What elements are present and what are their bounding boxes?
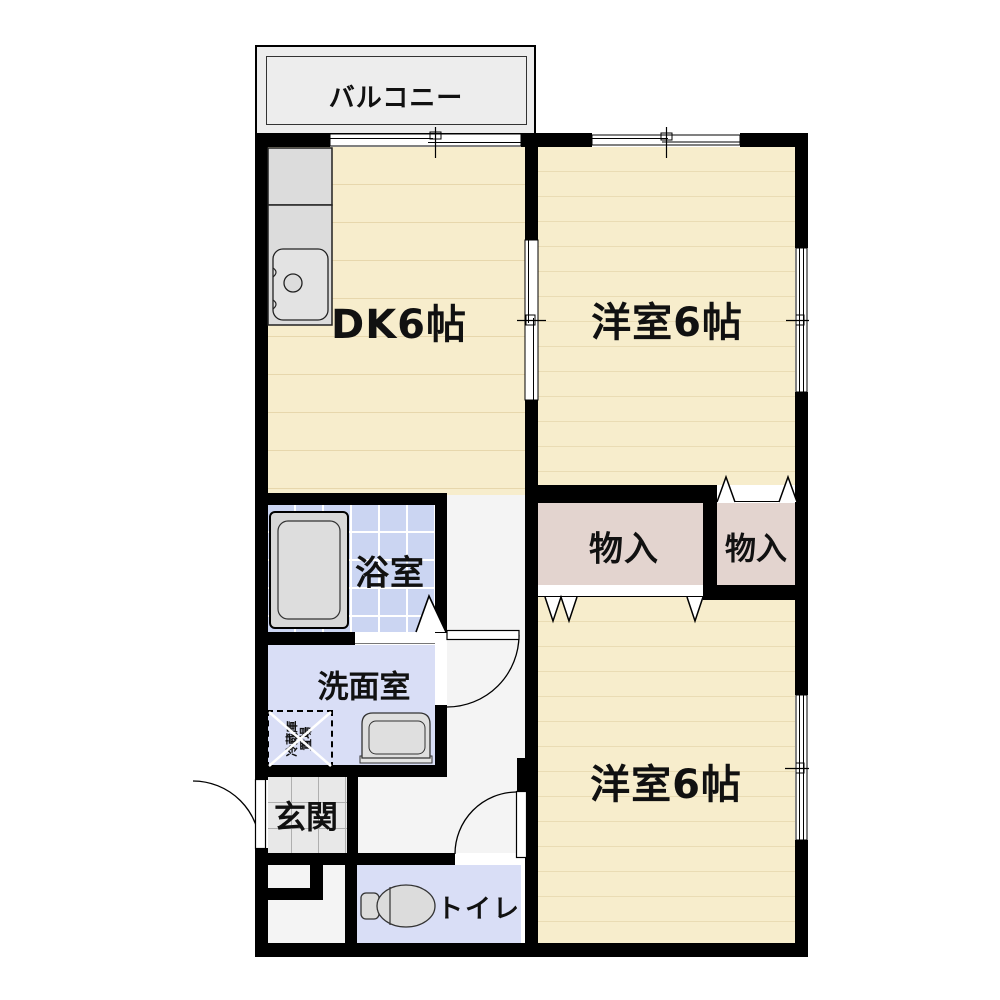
toilet-label: トイレ bbox=[437, 889, 521, 926]
closet-left-label: 物入 bbox=[589, 522, 659, 571]
bedroom-top-side-window-icon bbox=[786, 248, 809, 392]
balcony-label: バルコニー bbox=[329, 78, 463, 115]
bathroom-label: 浴室 bbox=[355, 546, 425, 595]
entrance-label: 玄関 bbox=[274, 792, 338, 838]
washroom-label: 洗面室 bbox=[318, 662, 411, 707]
entrance-door-icon bbox=[193, 780, 266, 849]
bathroom-folding-door-icon bbox=[416, 596, 446, 632]
bedroom-bottom-side-window-icon bbox=[785, 695, 809, 840]
dk-bedroom-sliding-door-icon bbox=[517, 240, 546, 400]
toilet-icon bbox=[361, 885, 435, 927]
bedroom-bottom-label: 洋室6帖 bbox=[590, 752, 742, 810]
balcony-sliding-door-icon bbox=[330, 127, 521, 158]
bedroom-top-window-icon bbox=[592, 127, 740, 158]
floor-plan: 冷蔵庫 置場 bbox=[0, 0, 1000, 1000]
dk-label: DK6帖 bbox=[331, 292, 467, 350]
fridge-cross-icon bbox=[269, 712, 331, 766]
bedroom-top-label: 洋室6帖 bbox=[591, 290, 743, 348]
toilet-door-icon bbox=[455, 792, 527, 858]
closet-right-folding-door-icon bbox=[717, 477, 797, 502]
closet-left-folding-door-icon bbox=[538, 597, 703, 622]
washbasin-icon bbox=[360, 713, 432, 763]
kitchen-counter-icon bbox=[268, 148, 332, 325]
plan-symbols bbox=[0, 0, 1000, 1000]
bathtub-icon bbox=[270, 512, 348, 628]
closet-right-label: 物入 bbox=[725, 524, 787, 569]
washroom-door-icon bbox=[447, 631, 519, 708]
